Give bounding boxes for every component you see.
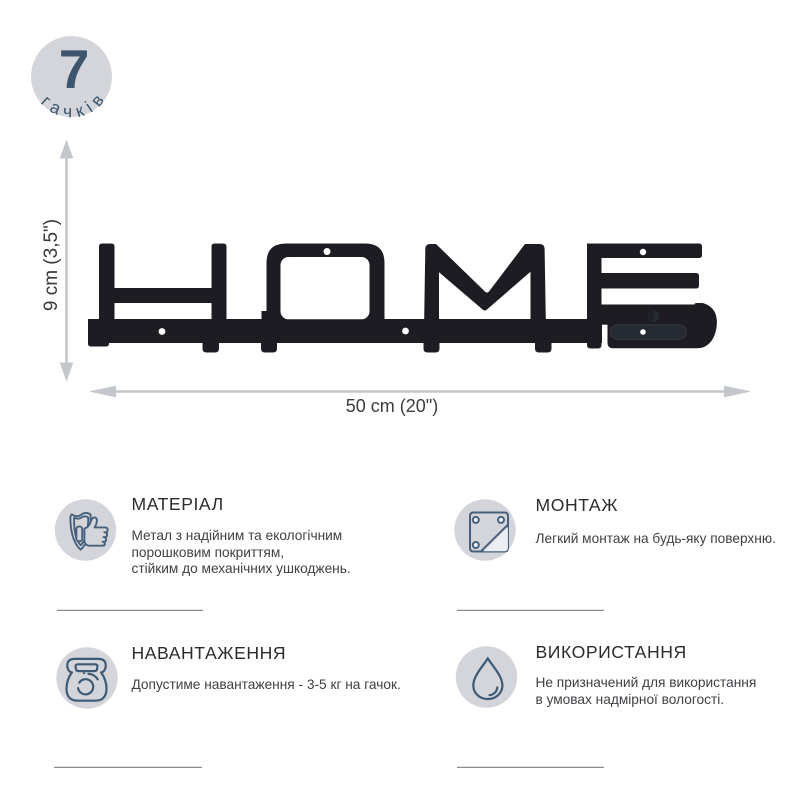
svg-text:7: 7	[59, 38, 90, 100]
